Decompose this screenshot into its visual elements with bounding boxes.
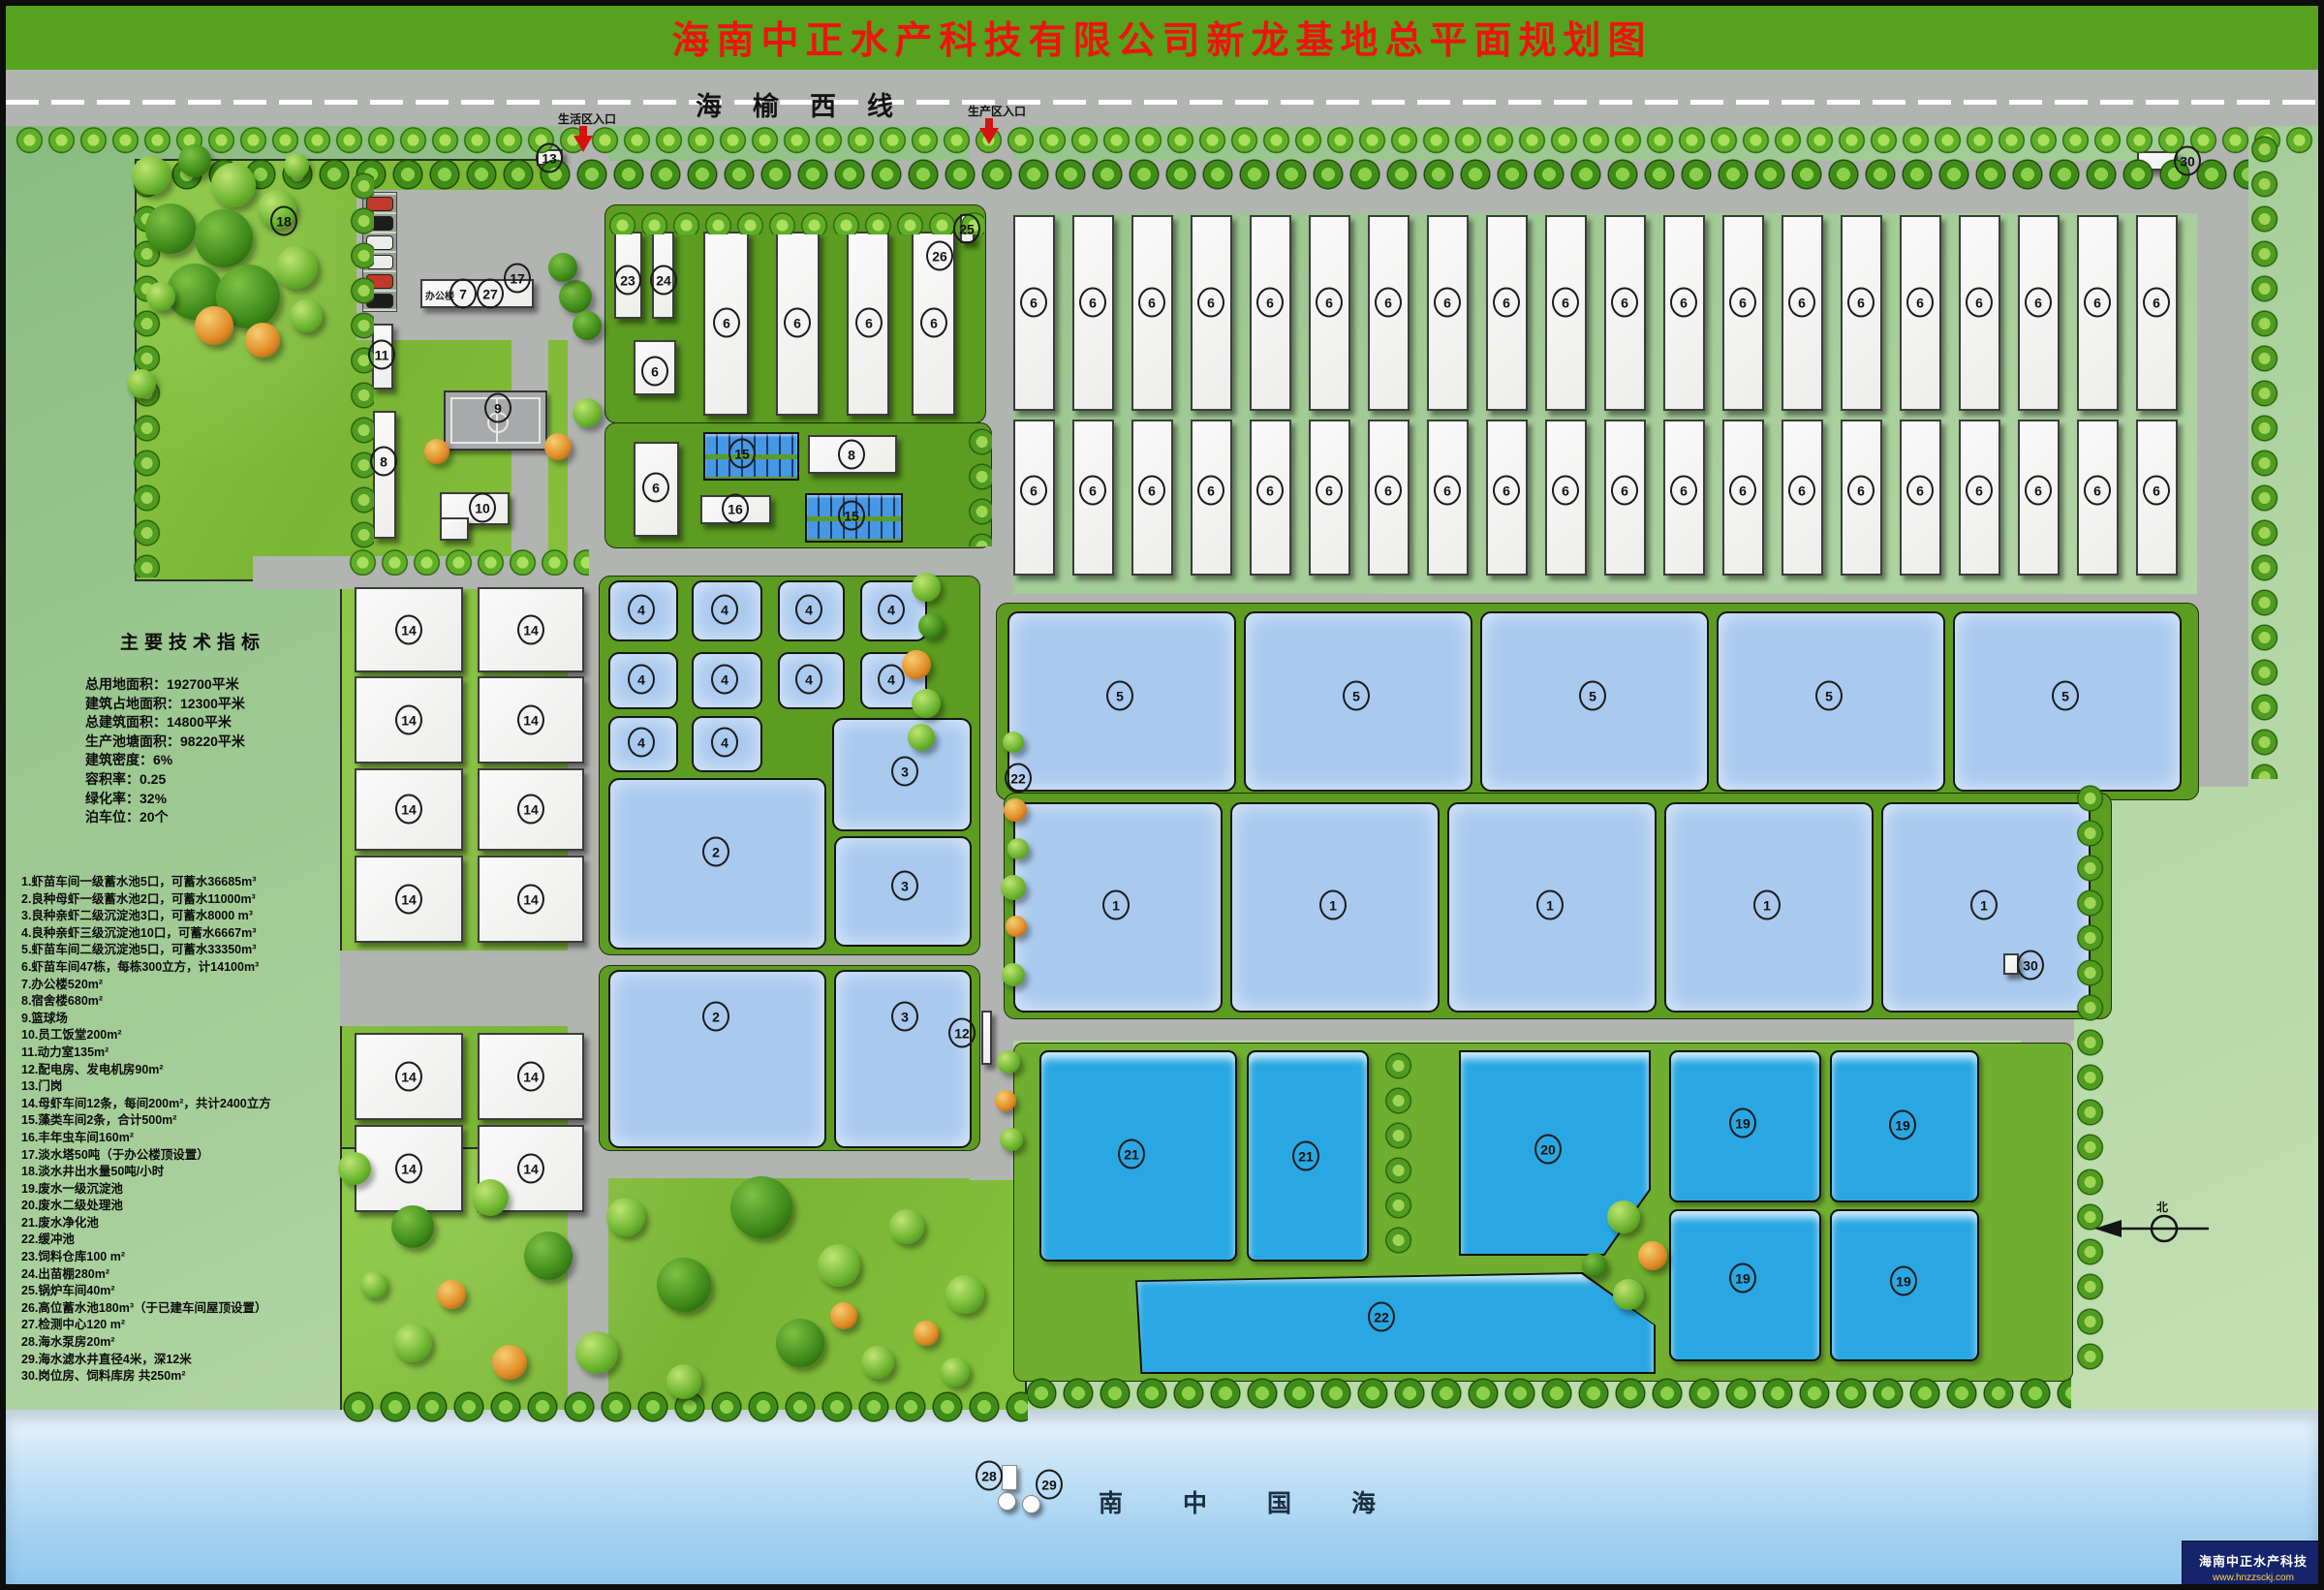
technical-indicators: 主要技术指标 总用地面积：192700平米建筑占地面积：12300平米总建筑面积… bbox=[85, 628, 265, 827]
circled-label-12: 12 bbox=[948, 1018, 976, 1048]
circled-label-13: 13 bbox=[536, 143, 563, 173]
circled-label-6: 6 bbox=[1729, 476, 1756, 506]
legend-item: 3.良种亲虾二级沉淀池3口，可蓄水8000 m³ bbox=[21, 908, 271, 925]
tree-icon bbox=[997, 1050, 1020, 1074]
circled-label-7: 7 bbox=[449, 279, 477, 309]
circled-label-6: 6 bbox=[1434, 288, 1461, 318]
pond-22-water bbox=[1137, 1274, 1654, 1372]
circled-label-6: 6 bbox=[641, 357, 668, 387]
circled-label-6: 6 bbox=[1847, 476, 1875, 506]
legend-item: 8.宿舍楼680m² bbox=[21, 993, 271, 1011]
sea-name-char: 海 bbox=[1351, 1484, 1376, 1519]
legend-item: 17.淡水塔50吨（于办公楼顶设置） bbox=[21, 1147, 271, 1165]
circled-label-14: 14 bbox=[517, 705, 544, 735]
tree-icon bbox=[995, 1090, 1016, 1111]
circled-label-1: 1 bbox=[1753, 890, 1781, 920]
tree-icon bbox=[1607, 1200, 1640, 1233]
circled-label-27: 27 bbox=[477, 279, 504, 309]
tree-icon bbox=[945, 1275, 984, 1314]
circled-label-4: 4 bbox=[628, 728, 655, 758]
circled-label-4: 4 bbox=[628, 665, 655, 695]
tree-icon bbox=[284, 153, 309, 178]
tree-icon bbox=[178, 144, 211, 177]
circled-label-29: 29 bbox=[1036, 1470, 1063, 1500]
tree-icon bbox=[1638, 1241, 1667, 1270]
circled-label-15: 15 bbox=[728, 439, 756, 469]
circled-label-6: 6 bbox=[1670, 476, 1697, 506]
east-boundary-tree-column-lower bbox=[2073, 781, 2106, 1374]
indicator-line: 泊车位：20个 bbox=[85, 808, 265, 827]
circled-label-6: 6 bbox=[1847, 288, 1875, 318]
legend-item: 2.良种母虾一级蓄水池2口，可蓄水11000m³ bbox=[21, 891, 271, 909]
circled-label-4: 4 bbox=[878, 665, 905, 695]
tree-icon bbox=[575, 1331, 618, 1374]
pond-3 bbox=[834, 970, 972, 1148]
circled-label-6: 6 bbox=[1670, 288, 1697, 318]
tree-icon bbox=[127, 369, 156, 398]
circled-label-6: 6 bbox=[1316, 288, 1343, 318]
tree-icon bbox=[830, 1302, 857, 1329]
circled-label-30: 30 bbox=[2174, 146, 2201, 176]
tree-icon bbox=[1002, 963, 1025, 986]
entrance-production-label: 生产区入口 bbox=[968, 103, 1026, 119]
indicator-line: 建筑占地面积：12300平米 bbox=[85, 695, 265, 714]
circled-label-30: 30 bbox=[2017, 951, 2044, 981]
tree-icon bbox=[195, 306, 233, 345]
circled-label-14: 14 bbox=[395, 795, 422, 825]
canteen-10-wing bbox=[440, 517, 469, 541]
tree-icon bbox=[559, 280, 592, 313]
pond-22 bbox=[1135, 1272, 1656, 1374]
waste-divider-trees bbox=[1381, 1048, 1455, 1260]
legend-item: 9.篮球场 bbox=[21, 1011, 271, 1028]
legend-item: 19.废水一级沉淀池 bbox=[21, 1181, 271, 1199]
circled-label-6: 6 bbox=[1434, 476, 1461, 506]
legend-item: 6.虾苗车间47栋，每栋300立方，计14100m³ bbox=[21, 959, 271, 977]
block-a-tree-row bbox=[606, 207, 984, 234]
circled-label-20: 20 bbox=[1534, 1135, 1562, 1165]
road-centerline bbox=[6, 100, 2324, 105]
tree-icon bbox=[1000, 1128, 1023, 1151]
filter-well-29-icon bbox=[998, 1492, 1016, 1511]
legend-item: 20.废水二级处理池 bbox=[21, 1198, 271, 1215]
sea-name-char: 国 bbox=[1267, 1484, 1291, 1519]
circled-label-4: 4 bbox=[711, 665, 738, 695]
circled-label-10: 10 bbox=[469, 493, 496, 523]
tree-icon bbox=[146, 282, 175, 311]
circled-label-6: 6 bbox=[1966, 288, 1993, 318]
road-name-char: 线 bbox=[867, 85, 893, 123]
circled-label-14: 14 bbox=[517, 1062, 544, 1092]
tree-icon bbox=[360, 1271, 387, 1298]
legend-item: 1.虾苗车间一级蓄水池5口，可蓄水36685m³ bbox=[21, 874, 271, 891]
circled-label-2: 2 bbox=[702, 1002, 729, 1032]
tree-icon bbox=[573, 398, 602, 427]
circled-label-6: 6 bbox=[1197, 476, 1224, 506]
indicator-line: 绿化率：32% bbox=[85, 790, 265, 809]
indicator-line: 生产池塘面积：98220平米 bbox=[85, 733, 265, 752]
circled-label-6: 6 bbox=[2084, 288, 2111, 318]
circled-label-5: 5 bbox=[1815, 681, 1843, 711]
tree-icon bbox=[573, 311, 602, 340]
tree-icon bbox=[472, 1179, 509, 1216]
legend-item: 4.良种亲虾三级沉淀池10口，可蓄水6667m³ bbox=[21, 925, 271, 943]
circled-label-19: 19 bbox=[1729, 1108, 1756, 1138]
road-name-char: 海 bbox=[696, 85, 722, 123]
circled-label-4: 4 bbox=[878, 595, 905, 625]
generator-room-12 bbox=[981, 1011, 992, 1065]
legend-item: 23.饲料仓库100 m² bbox=[21, 1249, 271, 1266]
circled-label-22: 22 bbox=[1368, 1302, 1395, 1332]
circled-label-18: 18 bbox=[270, 206, 297, 236]
legend-item: 29.海水滤水井直径4米，深12米 bbox=[21, 1352, 271, 1369]
circled-label-6: 6 bbox=[1611, 288, 1638, 318]
tree-icon bbox=[918, 613, 944, 639]
legend-item: 14.母虾车间12条，每间200m²，共计2400立方 bbox=[21, 1096, 271, 1113]
circled-label-6: 6 bbox=[1788, 288, 1815, 318]
north-compass-icon: 北 bbox=[2089, 1200, 2215, 1246]
circled-label-6: 6 bbox=[1493, 288, 1520, 318]
circled-label-3: 3 bbox=[891, 757, 918, 787]
circled-label-14: 14 bbox=[517, 615, 544, 645]
circled-label-14: 14 bbox=[395, 1154, 422, 1184]
circled-label-6: 6 bbox=[1552, 288, 1579, 318]
legend-item: 11.动力室135m² bbox=[21, 1044, 271, 1062]
circled-label-6: 6 bbox=[855, 308, 883, 338]
road-name-char: 榆 bbox=[753, 85, 779, 123]
circled-label-6: 6 bbox=[1138, 288, 1165, 318]
east-road-upper bbox=[2197, 126, 2248, 787]
legend-item: 18.淡水井出水量50吨/小时 bbox=[21, 1164, 271, 1181]
circled-label-1: 1 bbox=[1970, 890, 1998, 920]
circled-label-6: 6 bbox=[1788, 476, 1815, 506]
circled-label-14: 14 bbox=[517, 1154, 544, 1184]
south-boundary-tree-row bbox=[1023, 1372, 2071, 1413]
circled-label-6: 6 bbox=[1138, 476, 1165, 506]
seawater-pump-house-28 bbox=[1002, 1465, 1017, 1490]
indicator-line: 总用地面积：192700平米 bbox=[85, 675, 265, 695]
circled-label-6: 6 bbox=[1197, 288, 1224, 318]
legend-item: 21.废水净化池 bbox=[21, 1215, 271, 1232]
legend-item: 27.检测中心120 m² bbox=[21, 1317, 271, 1334]
logo-website: www.hnzzsckj.com bbox=[2213, 1573, 2294, 1583]
indicators-lines: 总用地面积：192700平米建筑占地面积：12300平米总建筑面积：14800平… bbox=[85, 675, 265, 827]
tree-icon bbox=[666, 1364, 701, 1399]
circled-label-6: 6 bbox=[713, 308, 740, 338]
plan-title: 海南中正水产科技有限公司新龙基地总平面规划图 bbox=[671, 11, 1652, 65]
circled-label-6: 6 bbox=[1906, 288, 1934, 318]
sea-name: 南中国海 bbox=[1099, 1484, 1376, 1519]
tree-icon bbox=[912, 689, 941, 718]
circled-label-22: 22 bbox=[1005, 764, 1032, 794]
road-name: 海榆西线 bbox=[696, 85, 893, 123]
circled-label-6: 6 bbox=[1906, 476, 1934, 506]
circled-label-6: 6 bbox=[1020, 476, 1047, 506]
tree-icon bbox=[657, 1258, 711, 1312]
circled-label-1: 1 bbox=[1536, 890, 1564, 920]
legend-item: 16.丰年虫车间160m² bbox=[21, 1130, 271, 1147]
legend-item: 10.员工饭堂200m² bbox=[21, 1027, 271, 1044]
tree-icon bbox=[548, 253, 577, 282]
tree-icon bbox=[908, 724, 935, 751]
circled-label-28: 28 bbox=[976, 1461, 1003, 1491]
circled-label-14: 14 bbox=[395, 615, 422, 645]
title-band: 海南中正水产科技有限公司新龙基地总平面规划图 bbox=[6, 6, 2318, 70]
circled-label-6: 6 bbox=[1020, 288, 1047, 318]
circled-label-6: 6 bbox=[1611, 476, 1638, 506]
entrance-production-arrow bbox=[979, 128, 999, 144]
circled-label-6: 6 bbox=[1552, 476, 1579, 506]
circled-label-6: 6 bbox=[1256, 288, 1284, 318]
circled-label-6: 6 bbox=[1375, 288, 1402, 318]
east-boundary-tree-column-upper bbox=[2247, 132, 2280, 779]
tree-icon bbox=[1001, 875, 1026, 900]
tree-icon bbox=[1007, 838, 1029, 859]
block-b-tree-column bbox=[965, 424, 992, 546]
compass-north-label: 北 bbox=[2156, 1200, 2168, 1214]
tree-icon bbox=[195, 209, 253, 267]
tree-icon bbox=[912, 573, 941, 602]
circled-label-14: 14 bbox=[395, 705, 422, 735]
circled-label-5: 5 bbox=[1579, 681, 1606, 711]
circled-label-16: 16 bbox=[722, 494, 749, 524]
company-logo: 海南中正水产科技 www.hnzzsckj.com bbox=[2182, 1541, 2324, 1590]
filter-well-29-icon bbox=[1022, 1495, 1040, 1513]
circled-label-4: 4 bbox=[711, 595, 738, 625]
blockD-south-road bbox=[568, 1149, 1013, 1178]
tree-icon bbox=[1003, 732, 1024, 753]
circled-label-6: 6 bbox=[2084, 476, 2111, 506]
circled-label-14: 14 bbox=[395, 885, 422, 915]
circled-label-9: 9 bbox=[484, 393, 511, 423]
circled-label-2: 2 bbox=[702, 837, 729, 867]
circled-label-6: 6 bbox=[1079, 288, 1106, 318]
circled-label-4: 4 bbox=[628, 595, 655, 625]
circled-label-6: 6 bbox=[642, 473, 669, 503]
tree-icon bbox=[818, 1244, 860, 1287]
circled-label-4: 4 bbox=[711, 728, 738, 758]
circled-label-21: 21 bbox=[1118, 1139, 1145, 1169]
tree-icon bbox=[902, 650, 931, 679]
circled-label-14: 14 bbox=[395, 1062, 422, 1092]
road-name-char: 西 bbox=[810, 85, 836, 123]
indicator-line: 建筑密度：6% bbox=[85, 751, 265, 770]
legend-item: 28.海水泵房20m² bbox=[21, 1334, 271, 1352]
tree-icon bbox=[861, 1346, 894, 1379]
circled-label-8: 8 bbox=[370, 447, 397, 477]
site-plan-canvas: 南中国海 海南中正水产科技有限公司新龙基地总平面规划图 海榆西线 生活区入口 生… bbox=[0, 0, 2324, 1590]
indicator-line: 容积率：0.25 bbox=[85, 770, 265, 790]
tree-icon bbox=[145, 203, 196, 254]
legend-list: 1.虾苗车间一级蓄水池5口，可蓄水36685m³2.良种母虾一级蓄水池2口，可蓄… bbox=[21, 874, 271, 1386]
legend-item: 26.高位蓄水池180m³（于已建车间屋顶设置） bbox=[21, 1300, 271, 1318]
circled-label-14: 14 bbox=[517, 795, 544, 825]
circled-label-14: 14 bbox=[517, 885, 544, 915]
circled-label-6: 6 bbox=[1493, 476, 1520, 506]
circled-label-4: 4 bbox=[795, 665, 822, 695]
entrance-living-label: 生活区入口 bbox=[558, 110, 616, 127]
tree-icon bbox=[275, 246, 318, 289]
circled-label-15: 15 bbox=[838, 501, 865, 531]
circled-label-21: 21 bbox=[1292, 1141, 1319, 1171]
tree-icon bbox=[776, 1319, 824, 1367]
legend-item: 24.出苗棚280m² bbox=[21, 1266, 271, 1284]
living-south-hedge bbox=[347, 545, 589, 576]
tree-icon bbox=[211, 163, 256, 207]
circled-label-6: 6 bbox=[2025, 476, 2052, 506]
indicators-heading: 主要技术指标 bbox=[120, 628, 265, 654]
site-edge-tree-row bbox=[132, 153, 2248, 192]
circled-label-1: 1 bbox=[1102, 890, 1130, 920]
tree-icon bbox=[132, 156, 170, 195]
entrance-living-arrow bbox=[573, 136, 593, 152]
pond-2 bbox=[608, 970, 826, 1148]
circled-label-5: 5 bbox=[2052, 681, 2079, 711]
circled-label-26: 26 bbox=[926, 241, 953, 271]
tree-icon bbox=[391, 1205, 434, 1248]
logo-company-name: 海南中正水产科技 bbox=[2199, 1551, 2308, 1570]
circled-label-6: 6 bbox=[1079, 476, 1106, 506]
tree-icon bbox=[544, 433, 572, 460]
tree-icon bbox=[437, 1280, 466, 1309]
circled-label-6: 6 bbox=[2143, 288, 2170, 318]
tree-icon bbox=[889, 1209, 924, 1244]
circled-label-5: 5 bbox=[1343, 681, 1370, 711]
circled-label-6: 6 bbox=[1729, 288, 1756, 318]
tree-icon bbox=[290, 299, 323, 332]
main-road bbox=[6, 70, 2324, 126]
tree-icon bbox=[492, 1345, 527, 1380]
circled-label-11: 11 bbox=[368, 340, 395, 370]
circled-label-6: 6 bbox=[1966, 476, 1993, 506]
legend-item: 12.配电房、发电机房90m² bbox=[21, 1062, 271, 1079]
legend-item: 15.藻类车间2条，合计500m² bbox=[21, 1112, 271, 1130]
circled-label-1: 1 bbox=[1319, 890, 1347, 920]
tree-icon bbox=[1613, 1279, 1644, 1310]
circled-label-24: 24 bbox=[650, 265, 677, 296]
legend-item: 7.办公楼520m² bbox=[21, 977, 271, 994]
circled-label-6: 6 bbox=[1375, 476, 1402, 506]
tree-icon bbox=[1004, 798, 1027, 822]
tree-icon bbox=[941, 1357, 970, 1387]
sea-name-char: 中 bbox=[1183, 1484, 1207, 1519]
legend-item: 22.缓冲池 bbox=[21, 1231, 271, 1249]
tree-icon bbox=[424, 439, 449, 464]
circled-label-6: 6 bbox=[784, 308, 811, 338]
circled-label-19: 19 bbox=[1889, 1110, 1916, 1140]
tree-icon bbox=[730, 1176, 792, 1238]
tree-icon bbox=[393, 1324, 432, 1362]
legend-item: 13.门岗 bbox=[21, 1078, 271, 1096]
circled-label-19: 19 bbox=[1890, 1266, 1917, 1296]
legend-item: 5.虾苗车间二级沉淀池5口，可蓄水33350m³ bbox=[21, 942, 271, 959]
tree-icon bbox=[338, 1152, 371, 1185]
circled-label-6: 6 bbox=[2025, 288, 2052, 318]
circled-label-6: 6 bbox=[1256, 476, 1284, 506]
circled-label-6: 6 bbox=[920, 308, 947, 338]
circled-label-5: 5 bbox=[1106, 681, 1133, 711]
circled-label-3: 3 bbox=[891, 871, 918, 901]
tree-icon bbox=[1006, 916, 1027, 937]
circled-label-6: 6 bbox=[1316, 476, 1343, 506]
tree-icon bbox=[1582, 1253, 1607, 1278]
circled-label-19: 19 bbox=[1729, 1263, 1756, 1294]
circled-label-4: 4 bbox=[795, 595, 822, 625]
circled-label-6: 6 bbox=[2143, 476, 2170, 506]
circled-label-25: 25 bbox=[953, 214, 980, 244]
tree-icon bbox=[245, 323, 280, 358]
workshop14-mid-road bbox=[340, 951, 608, 1026]
roadside-tree-row bbox=[14, 122, 2322, 157]
tree-icon bbox=[524, 1231, 573, 1280]
indicator-line: 总建筑面积：14800平米 bbox=[85, 713, 265, 733]
circled-label-23: 23 bbox=[614, 265, 641, 296]
circled-label-8: 8 bbox=[838, 440, 865, 470]
sea-name-char: 南 bbox=[1099, 1484, 1123, 1519]
tree-icon bbox=[606, 1198, 645, 1236]
circled-label-17: 17 bbox=[504, 264, 531, 294]
circled-label-3: 3 bbox=[891, 1002, 918, 1032]
tree-icon bbox=[914, 1321, 939, 1346]
legend-item: 30.岗位房、饲料库房 共250m² bbox=[21, 1368, 271, 1386]
legend-item: 25.锅炉车间40m² bbox=[21, 1283, 271, 1300]
